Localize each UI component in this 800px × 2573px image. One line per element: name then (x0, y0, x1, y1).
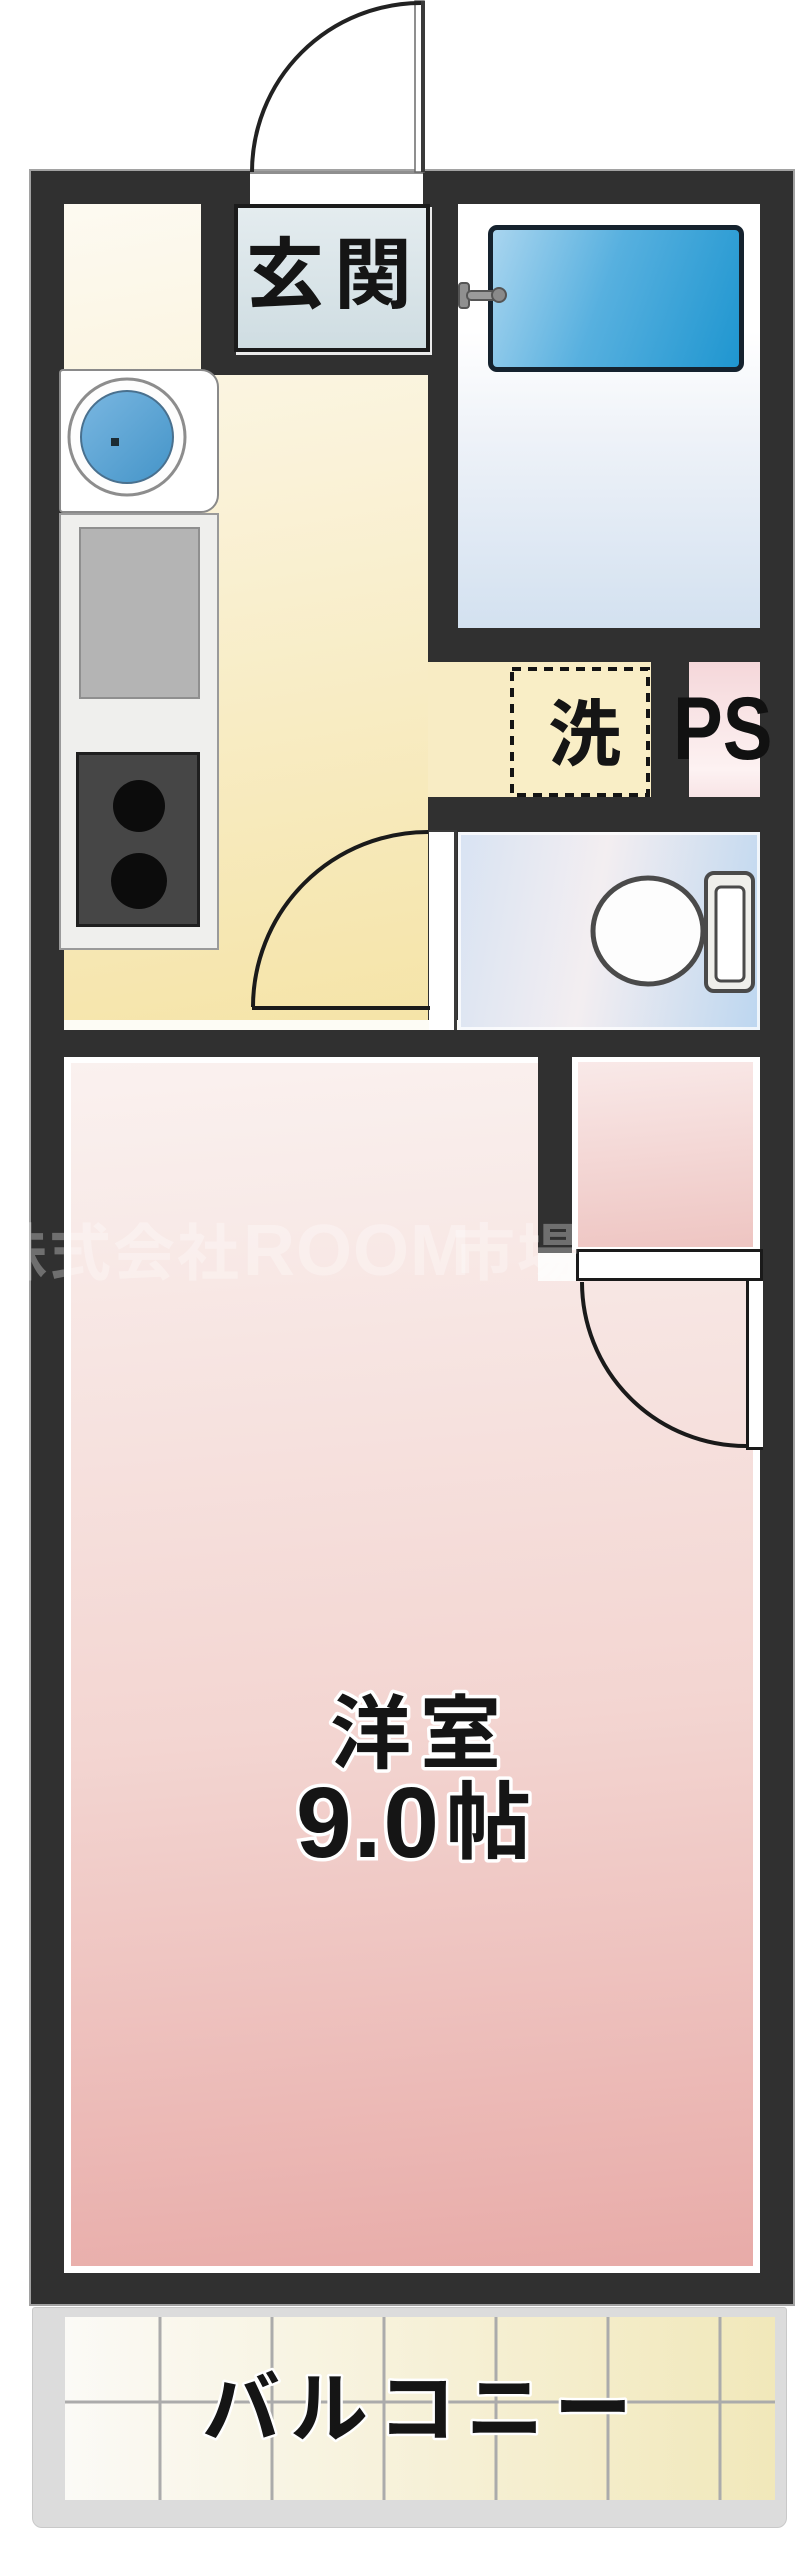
svg-text:ROOM: ROOM (243, 1211, 471, 1291)
